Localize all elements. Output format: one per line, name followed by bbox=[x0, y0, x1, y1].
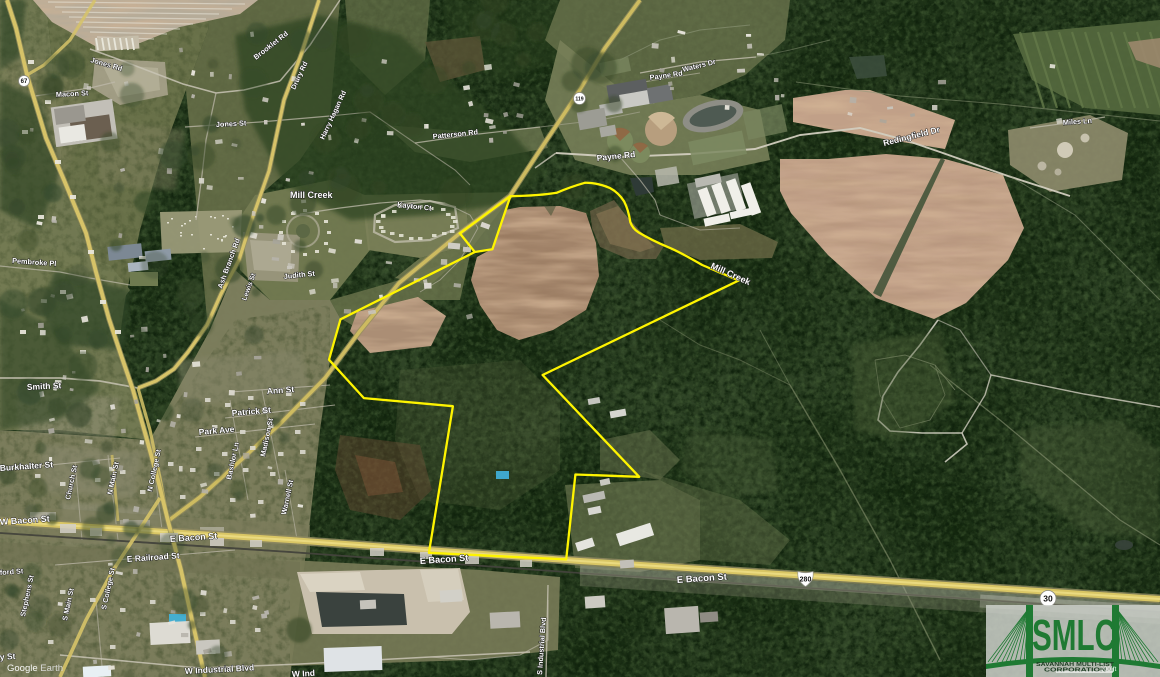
svg-text:y St: y St bbox=[0, 651, 16, 662]
svg-text:100 ft: 100 ft bbox=[1100, 666, 1116, 673]
svg-text:W Ind: W Ind bbox=[292, 668, 316, 677]
svg-text:119: 119 bbox=[575, 96, 583, 102]
svg-text:Mill Creek: Mill Creek bbox=[290, 190, 334, 200]
svg-text:Jones St: Jones St bbox=[216, 118, 247, 129]
svg-text:280: 280 bbox=[800, 577, 812, 584]
svg-text:ford St: ford St bbox=[0, 566, 24, 577]
svg-text:67: 67 bbox=[21, 79, 28, 85]
svg-text:Macon St: Macon St bbox=[56, 88, 89, 99]
svg-text:Ann St: Ann St bbox=[266, 384, 294, 396]
svg-text:SMLC: SMLC bbox=[1032, 611, 1116, 660]
svg-text:Google Earth: Google Earth bbox=[7, 663, 63, 674]
svg-text:30: 30 bbox=[1043, 594, 1053, 604]
svg-text:Smith St: Smith St bbox=[27, 380, 62, 392]
